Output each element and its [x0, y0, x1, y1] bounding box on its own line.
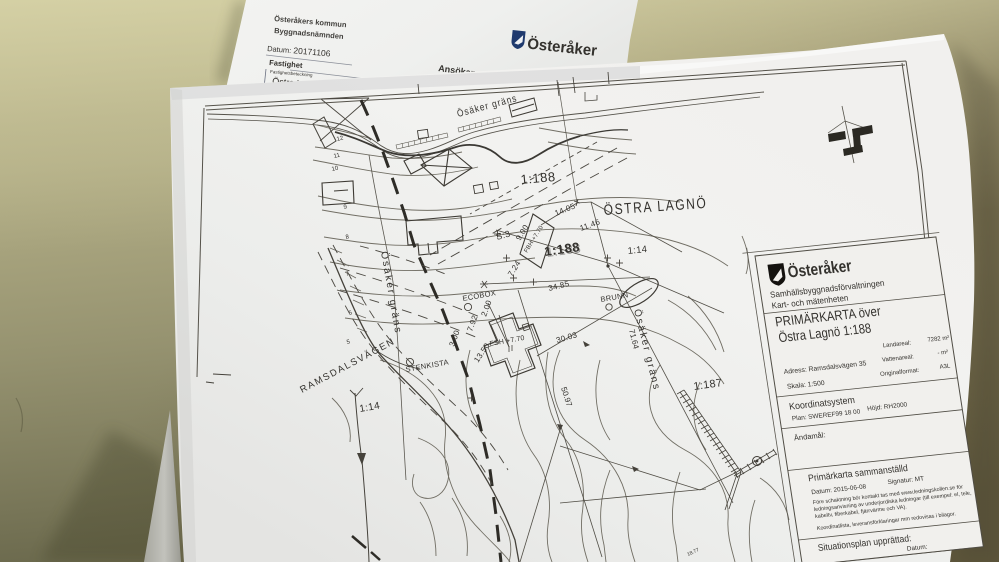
svg-text:A3L: A3L — [939, 364, 951, 371]
svg-text:1:14: 1:14 — [627, 244, 648, 257]
svg-text:- m²: - m² — [937, 350, 948, 357]
svg-text:1:188: 1:188 — [520, 169, 556, 187]
